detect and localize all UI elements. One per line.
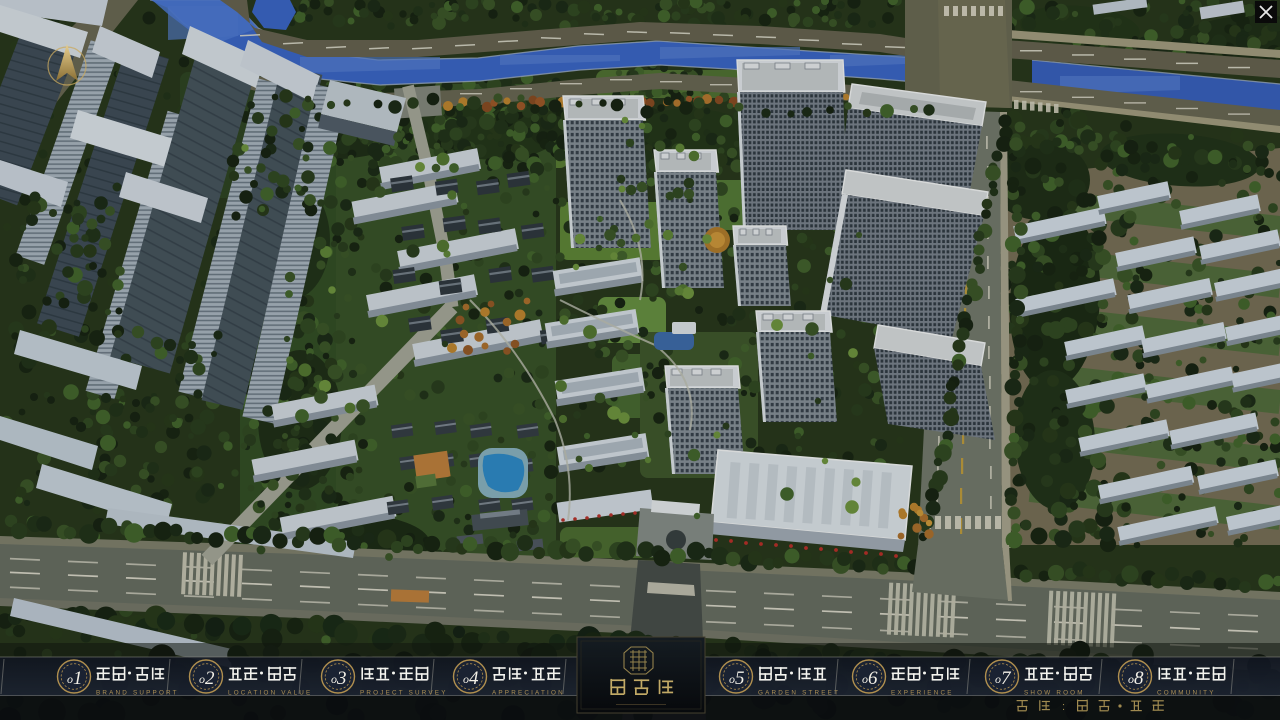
svg-text:LOCATION VALUE: LOCATION VALUE xyxy=(228,690,312,697)
svg-text:5: 5 xyxy=(735,668,745,689)
svg-text:7: 7 xyxy=(1001,668,1012,689)
svg-text:PROJECT SURVEY: PROJECT SURVEY xyxy=(360,690,448,697)
svg-text:2: 2 xyxy=(205,668,215,689)
svg-text:4: 4 xyxy=(469,668,479,689)
svg-text:6: 6 xyxy=(868,668,878,689)
svg-text:APPRECIATION: APPRECIATION xyxy=(492,690,565,697)
svg-text:EXPERIENCE: EXPERIENCE xyxy=(891,690,954,697)
svg-text:3: 3 xyxy=(336,668,347,689)
svg-text:1: 1 xyxy=(73,668,83,689)
svg-text::: : xyxy=(1062,701,1065,713)
svg-text:BRAND SUPPORT: BRAND SUPPORT xyxy=(96,690,179,697)
svg-text:COMMUNITY: COMMUNITY xyxy=(1157,690,1216,697)
svg-text:8: 8 xyxy=(1134,668,1144,689)
svg-text:GARDEN STREET: GARDEN STREET xyxy=(758,690,840,697)
svg-text:SHOW ROOM: SHOW ROOM xyxy=(1024,690,1085,697)
